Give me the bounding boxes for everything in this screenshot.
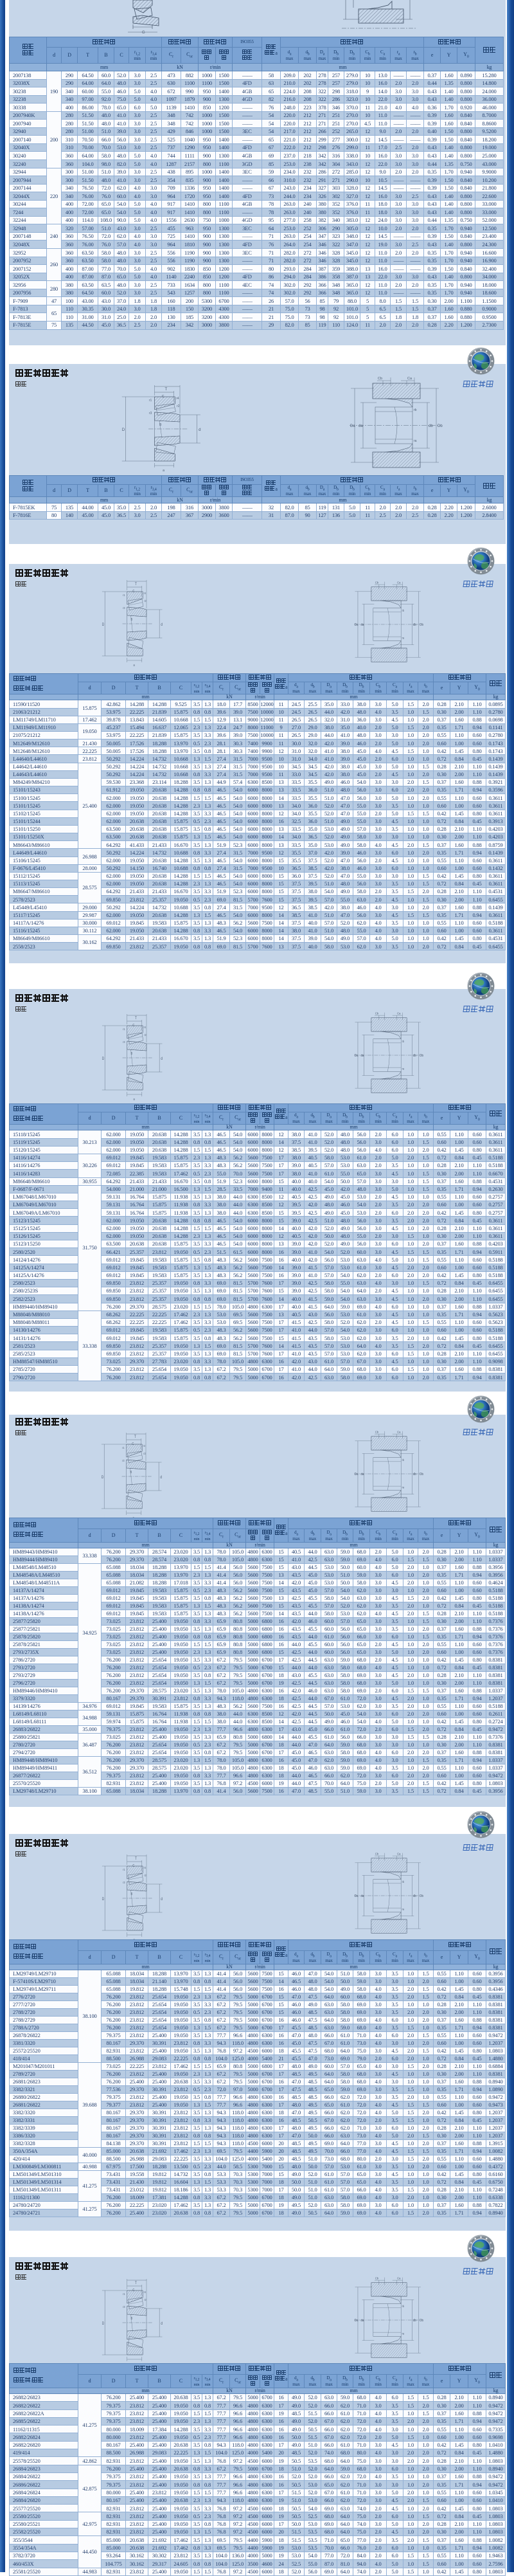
svg-text:r4: r4 — [144, 2290, 146, 2294]
svg-text:d: d — [199, 428, 201, 432]
svg-text:Ca: Ca — [397, 1852, 401, 1855]
svg-text:ra: ra — [402, 1067, 405, 1070]
svg-text:Cb: Cb — [375, 581, 379, 584]
svg-text:Db: Db — [420, 1473, 423, 1477]
svg-text:r2: r2 — [144, 1033, 146, 1037]
svg-text:r4: r4 — [144, 1865, 146, 1869]
svg-text:Ca: Ca — [397, 581, 401, 584]
svg-text:r1: r1 — [123, 1867, 125, 1871]
svg-text:Db: Db — [420, 1894, 423, 1899]
svg-text:rb: rb — [402, 1880, 405, 1883]
svg-text:ra: ra — [402, 1907, 405, 1910]
svg-text:ra: ra — [402, 1485, 405, 1489]
svg-text:ra: ra — [402, 636, 405, 639]
svg-text:Cb: Cb — [375, 1011, 379, 1015]
svg-text:r4: r4 — [144, 591, 146, 595]
svg-text:da: da — [359, 424, 363, 428]
svg-text:r4: r4 — [144, 1025, 146, 1029]
svg-text:da: da — [360, 1894, 364, 1899]
svg-text:B: B — [131, 1051, 133, 1056]
svg-text:da: da — [360, 1473, 364, 1477]
svg-text:r1: r1 — [123, 593, 125, 597]
svg-text:Db: Db — [420, 623, 423, 628]
svg-text:da: da — [360, 2319, 364, 2323]
svg-text:D: D — [102, 1057, 104, 1061]
svg-text:Da: Da — [355, 1473, 359, 1477]
svg-text:r4: r4 — [143, 1444, 146, 1447]
svg-text:r1: r1 — [123, 2292, 125, 2296]
svg-text:C: C — [132, 1023, 134, 1028]
svg-text:d: d — [161, 622, 163, 627]
svg-text:d: d — [160, 1475, 162, 1480]
svg-text:Ca: Ca — [407, 377, 412, 381]
svg-text:Db: Db — [420, 1054, 423, 1058]
svg-text:Cb: Cb — [378, 377, 382, 381]
svg-text:rb: rb — [402, 609, 405, 612]
svg-text:T: T — [165, 387, 168, 392]
svg-text:r1: r1 — [123, 1027, 125, 1031]
svg-text:r2: r2 — [177, 404, 179, 408]
svg-text:db: db — [429, 424, 433, 428]
svg-text:C: C — [132, 2288, 134, 2292]
svg-text:r1: r1 — [149, 399, 152, 403]
svg-text:D: D — [102, 1897, 104, 1901]
svg-text:rb: rb — [402, 1040, 405, 1043]
svg-text:D: D — [102, 622, 104, 627]
svg-text:d: d — [161, 1057, 163, 1061]
svg-text:db: db — [413, 623, 416, 628]
svg-text:Da: Da — [355, 1054, 359, 1058]
svg-text:B: B — [131, 617, 133, 622]
svg-text:db: db — [413, 1473, 416, 1477]
svg-text:a: a — [133, 664, 134, 668]
svg-text:a: a — [163, 469, 164, 473]
svg-text:d: d — [161, 1897, 163, 1901]
svg-text:r1: r1 — [122, 1446, 125, 1449]
svg-text:Ca: Ca — [397, 1011, 401, 1015]
svg-text:G: G — [142, 31, 145, 35]
svg-text:Da: Da — [355, 1894, 359, 1899]
svg-text:C: C — [132, 1442, 134, 1446]
svg-text:db: db — [413, 1054, 416, 1058]
svg-text:d: d — [161, 2321, 163, 2326]
svg-text:r2: r2 — [144, 2298, 146, 2301]
svg-text:Da: Da — [355, 2319, 359, 2323]
svg-text:D: D — [102, 1475, 103, 1480]
svg-text:B: B — [159, 423, 162, 427]
svg-text:Cb: Cb — [375, 1852, 379, 1855]
svg-text:r3: r3 — [122, 1458, 125, 1462]
svg-text:T: T — [135, 1856, 137, 1861]
svg-text:D: D — [122, 428, 125, 432]
svg-text:Da: Da — [355, 623, 359, 628]
svg-text:rb: rb — [402, 2305, 405, 2308]
svg-text:r3: r3 — [123, 2305, 125, 2308]
svg-text:r3: r3 — [123, 1880, 125, 1884]
svg-text:ra: ra — [402, 2332, 405, 2335]
svg-text:T: T — [135, 2281, 137, 2285]
svg-text:db: db — [413, 2319, 416, 2323]
svg-text:Ca: Ca — [397, 1430, 401, 1433]
svg-text:a: a — [133, 1098, 134, 1102]
svg-text:B: B — [131, 1892, 133, 1896]
svg-text:T: T — [135, 1016, 137, 1020]
svg-text:C: C — [162, 395, 164, 399]
svg-text:db: db — [413, 1894, 416, 1899]
svg-text:D: D — [102, 2321, 104, 2326]
svg-text:r2: r2 — [143, 1451, 146, 1455]
svg-text:Cb: Cb — [375, 2276, 379, 2280]
svg-text:Ca: Ca — [397, 2276, 401, 2280]
svg-text:r3: r3 — [123, 606, 125, 610]
svg-text:ra: ra — [414, 439, 417, 443]
svg-text:r2: r2 — [144, 1873, 146, 1877]
svg-text:Da: Da — [350, 424, 355, 428]
svg-text:r3: r3 — [149, 412, 152, 415]
svg-text:Cb: Cb — [375, 1430, 379, 1433]
svg-text:Db: Db — [438, 424, 443, 428]
svg-text:rb: rb — [414, 408, 417, 412]
svg-text:da: da — [360, 1054, 364, 1058]
svg-text:T: T — [135, 582, 137, 586]
svg-text:r2: r2 — [144, 599, 146, 603]
svg-text:C: C — [132, 589, 134, 594]
svg-text:B: B — [130, 1470, 132, 1474]
svg-text:T: T — [134, 1435, 136, 1439]
svg-text:r3: r3 — [123, 1040, 125, 1044]
svg-text:rb: rb — [402, 1458, 405, 1462]
svg-text:da: da — [360, 623, 364, 628]
svg-text:B: B — [131, 2316, 133, 2321]
svg-text:C: C — [132, 1864, 134, 1868]
svg-text:r4: r4 — [176, 397, 179, 401]
svg-text:Db: Db — [420, 2319, 423, 2323]
